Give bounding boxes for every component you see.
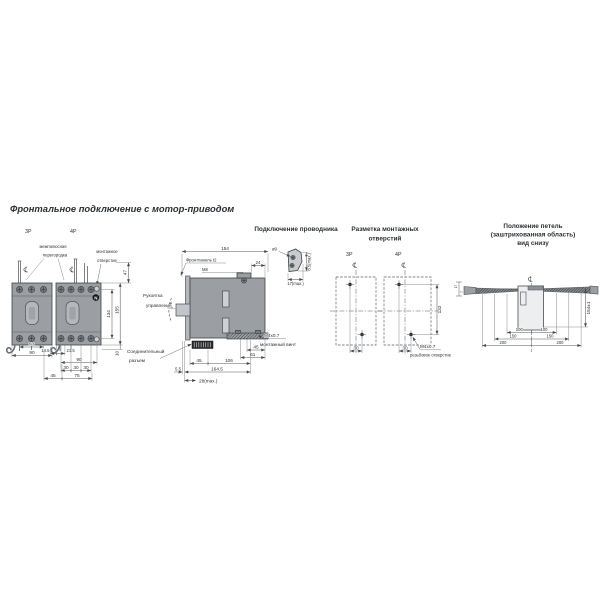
breaker-bottom-outline (518, 286, 544, 330)
dim-10: 10 (115, 351, 120, 357)
mounting-hole-top (94, 286, 99, 291)
dim-200-left: 200 (500, 340, 508, 345)
dim-106: 106 (225, 358, 233, 363)
label-4p: 4P (70, 229, 77, 235)
dim-30-4p: 30 (402, 345, 408, 350)
hinge-position-section: Положение петель (заштрихованная область… (454, 223, 598, 352)
dim-90-3p: 90 (29, 350, 35, 355)
dim-30-1: 30 (63, 365, 69, 370)
dim-45-bottom: 45 (196, 358, 202, 363)
breaker-4p-front-view: N (51, 259, 101, 353)
hinge-section-title-line2: (заштрихованная область) (491, 231, 576, 239)
connector-label-line2: разъем (129, 358, 145, 363)
mounting-label-4p: 4P (395, 252, 402, 258)
m8-bolt-label: М8 (202, 267, 208, 272)
dim-75: 75 (74, 373, 80, 378)
dim-14-5: 14.5 (41, 348, 50, 353)
dim-17-hinge: 17 (454, 285, 458, 289)
slot-upper (223, 291, 230, 307)
dim-154: 154 (221, 246, 229, 251)
dim-164-5: 164.5 (211, 366, 223, 371)
dim-5-5: 5.5 (175, 366, 181, 371)
dim-200-right: 200 (557, 340, 565, 345)
callout-partition-line2: перегородка (43, 253, 68, 258)
hinge-end-left (464, 287, 476, 295)
handle-label-line1: Рукоятка (143, 293, 163, 298)
dim-diameter-9: ø9 (272, 247, 278, 252)
threaded-hole-label-line1: М4х0.7 (420, 344, 436, 349)
dim-134: 134 (106, 310, 111, 318)
conductor-lug (288, 249, 302, 272)
conductor-section-title: Подключение проводника (254, 226, 338, 233)
control-handle (176, 304, 190, 316)
callout-partition-line1: межполюсная (39, 244, 66, 249)
dim-45: 45 (50, 373, 56, 378)
conductor-section: Подключение проводника ø9 8.5(max.) 17(m… (254, 226, 338, 286)
dim-47: 47 (123, 270, 128, 276)
dim-61: 61 (250, 352, 256, 357)
hinge-end-right (590, 286, 598, 294)
m8-boss (237, 273, 251, 278)
centerline-icon (353, 262, 357, 268)
dim-30-3: 30 (83, 365, 89, 370)
threaded-hole-label-line2: резьбовое отверстие (410, 353, 452, 358)
dim-155: 155 (115, 306, 120, 314)
centerline-icon (24, 266, 28, 272)
dim-150-left: 150 (510, 333, 518, 338)
technical-drawing: Фронтальное подключение с мотор-приводом… (0, 0, 600, 600)
dim-8-5-max: 8.5(max.) (307, 252, 312, 270)
front-panel-label: Фронтпанель t2 (186, 258, 217, 263)
dim-150-right: 150 (547, 333, 555, 338)
centerline-icon (528, 276, 532, 282)
mounting-screw-label-line2: монтажный винт (260, 341, 297, 347)
centerline-icon (70, 266, 74, 272)
dim-17-max: 17(max.) (287, 281, 304, 286)
slot-lower (223, 318, 230, 333)
hinge-sweep-right (544, 287, 593, 294)
motor-drive-cable (51, 345, 59, 353)
callout-mounting-hole-line2: отверстие (97, 258, 117, 263)
dim-24: 24 (256, 260, 261, 265)
terminal-lug (227, 333, 268, 339)
centerline-icon (402, 262, 406, 268)
dim-154-1: 154±1 (586, 301, 591, 314)
side-view-section: 154 Фронтпанель t2 М8 24 Рукоятка управл… (127, 246, 297, 384)
mounting-label-3p: 3P (346, 252, 353, 258)
dim-45-lug: 45 (253, 344, 259, 349)
dim-30-3p: 30 (353, 345, 359, 350)
mounting-hole-bottom (94, 337, 99, 342)
dim-28-max: 28(max.) (199, 379, 218, 384)
breaker-bottom-cap (528, 286, 543, 290)
mounting-screw-label-line1: М4х0.7 (264, 333, 280, 338)
hinge-section-title-line3: вид снизу (517, 240, 549, 247)
breaker-3p-front-view (7, 261, 52, 353)
datasheet-page: Фронтальное подключение с мотор-приводом… (0, 0, 600, 600)
dim-100-right: 100 (541, 327, 549, 332)
dim-100-left: 100 (516, 327, 524, 332)
label-3p: 3P (25, 229, 32, 235)
mounting-section-title-line1: Разметка монтажных (351, 226, 419, 233)
dim-7-hinge: 7 (460, 291, 464, 293)
connector-block (192, 341, 213, 349)
dim-132: 132 (437, 305, 442, 313)
dim-30-2: 30 (73, 365, 79, 370)
connector-label-line1: Соединительный (127, 348, 165, 354)
front-section-title: Фронтальное подключение с мотор-приводом (10, 203, 234, 214)
dim-60: 60 (29, 341, 35, 346)
mounting-section-title-line2: отверстий (369, 235, 402, 243)
hinge-section-title-line1: Положение петель (503, 223, 562, 230)
callout-mounting-hole-line1: монтажное (96, 249, 118, 254)
handle-label-line2: управления (146, 303, 172, 308)
m8-bolt (241, 278, 246, 283)
neutral-pole-label: N (94, 295, 97, 300)
mounting-layout-section: Разметка монтажных отверстий 3P 4P 132 3… (330, 226, 452, 358)
motor-drive-cable (7, 345, 15, 353)
